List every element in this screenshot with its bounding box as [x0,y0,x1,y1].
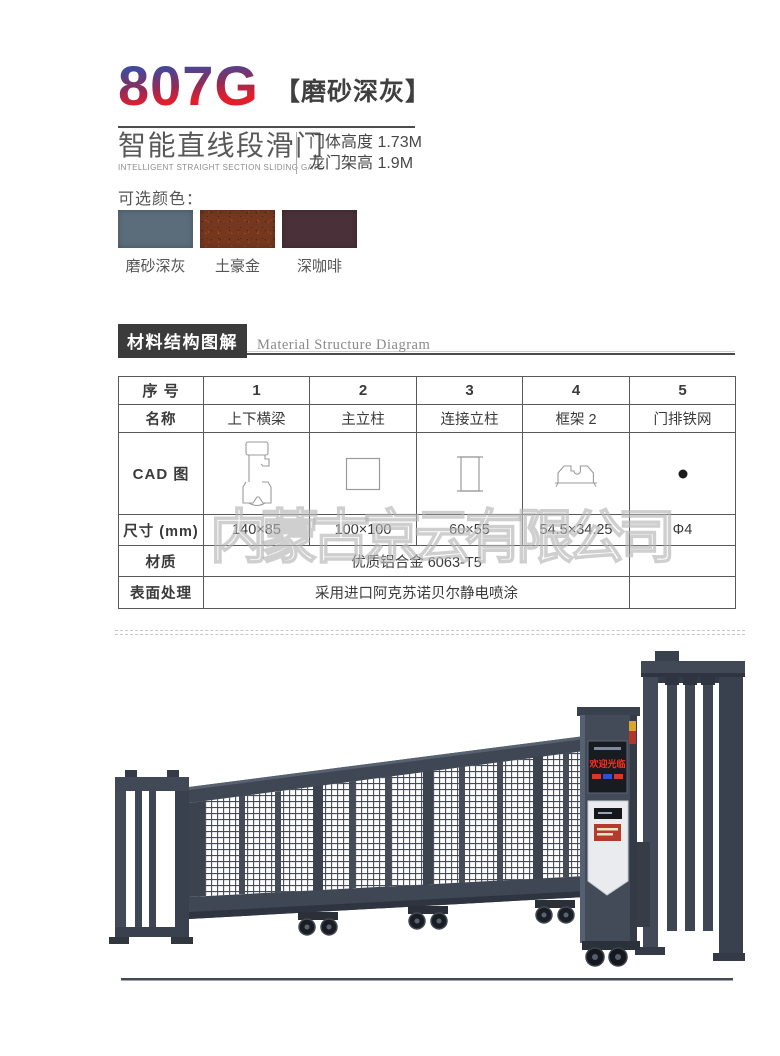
led-display: 欢迎光临 [588,741,627,793]
material-structure-table: 序 号 1 2 3 4 5 名称 上下横梁 主立柱 连接立柱 框架 2 门排铁网… [118,376,736,609]
part-name-1: 上下横梁 [204,405,310,433]
swatch-gold-name: 土豪金 [200,255,275,276]
col-3: 3 [417,377,523,405]
part-name-3: 连接立柱 [417,405,523,433]
wire-dot-icon [675,466,691,482]
swatch-coffee-color [282,210,357,248]
size-1: 140×85 [204,515,310,546]
color-options-label: 可选颜色： [118,185,203,209]
size-3: 60×55 [417,515,523,546]
gantry-frame [635,651,745,961]
part-name-4: 框架 2 [523,405,630,433]
swatch-coffee-name: 深咖啡 [282,255,357,276]
material-value: 优质铝合金 6063-T5 [204,546,630,577]
square-tube-icon [344,456,382,492]
size-4: 54.5×34.25 [523,515,630,546]
part-name-5: 门排铁网 [630,405,736,433]
gate-body [189,736,585,919]
gate-head: 欢迎光临 [577,707,640,966]
surface-empty-cell [630,577,736,609]
table-row-material: 材质 优质铝合金 6063-T5 [119,546,736,577]
col-2: 2 [310,377,417,405]
product-name-en: INTELLIGENT STRAIGHT SECTION SLIDING GAT… [118,163,325,172]
col-1: 1 [204,377,310,405]
title-block: 807G 【磨砂深灰】 [118,58,431,114]
beam-profile-icon [240,440,274,508]
swatch-coffee: 深咖啡 [282,210,357,276]
rect-tube-icon [454,452,486,496]
cad-cell-5 [630,433,736,515]
row-header-size: 尺寸 (mm) [119,515,204,546]
product-name-cn: 智能直线段滑门 [118,131,325,160]
swatch-frosted-gray-color [118,210,193,248]
swatch-frosted-gray-name: 磨砂深灰 [118,255,193,276]
cad-cell-4 [523,433,630,515]
spec-lines: 门体高度 1.73M 龙门架高 1.9M [296,132,422,174]
row-header-cad: CAD 图 [119,433,204,515]
surface-value: 采用进口阿克苏诺贝尔静电喷涂 [204,577,630,609]
section-title-cn: 材料结构图解 [118,324,247,358]
size-2: 100×100 [310,515,417,546]
part-name-2: 主立柱 [310,405,417,433]
table-row-index: 序 号 1 2 3 4 5 [119,377,736,405]
cad-cell-2 [310,433,417,515]
gate-illustration: 欢迎光临 [85,645,745,995]
product-name-block: 智能直线段滑门 INTELLIGENT STRAIGHT SECTION SLI… [118,131,325,172]
section-title-en: Material Structure Diagram [257,337,430,358]
tail-frame [109,770,193,944]
color-swatches: 磨砂深灰 土豪金 深咖啡 [118,210,357,276]
spec-gate-height: 门体高度 1.73M [309,132,422,153]
cad-cell-1 [204,433,310,515]
table-row-size: 尺寸 (mm) 140×85 100×100 60×55 54.5×34.25 … [119,515,736,546]
section-header: 材料结构图解 Material Structure Diagram [118,324,430,358]
table-row-name: 名称 上下横梁 主立柱 连接立柱 框架 2 门排铁网 [119,405,736,433]
table-row-cad: CAD 图 [119,433,736,515]
row-header-name: 名称 [119,405,204,433]
row-header-index: 序 号 [119,377,204,405]
warning-sticker [629,721,636,731]
swatch-gold-color [200,210,275,248]
swatch-gold: 土豪金 [200,210,275,276]
product-model: 807G [118,58,259,114]
table-row-surface: 表面处理 采用进口阿克苏诺贝尔静电喷涂 [119,577,736,609]
row-header-material: 材质 [119,546,204,577]
title-divider [118,126,415,128]
svg-text:欢迎光临: 欢迎光临 [588,758,625,769]
col-4: 4 [523,377,630,405]
spec-gantry-height: 龙门架高 1.9M [309,153,422,174]
ground-line [121,978,733,981]
material-empty-cell [630,546,736,577]
variant-label: 【磨砂深灰】 [275,72,431,108]
control-panel [588,801,628,895]
row-header-surface: 表面处理 [119,577,204,609]
swatch-frosted-gray: 磨砂深灰 [118,210,193,276]
frame-profile-icon [553,460,599,488]
dotted-separator [115,630,745,635]
col-5: 5 [630,377,736,405]
size-5: Φ4 [630,515,736,546]
cad-cell-3 [417,433,523,515]
